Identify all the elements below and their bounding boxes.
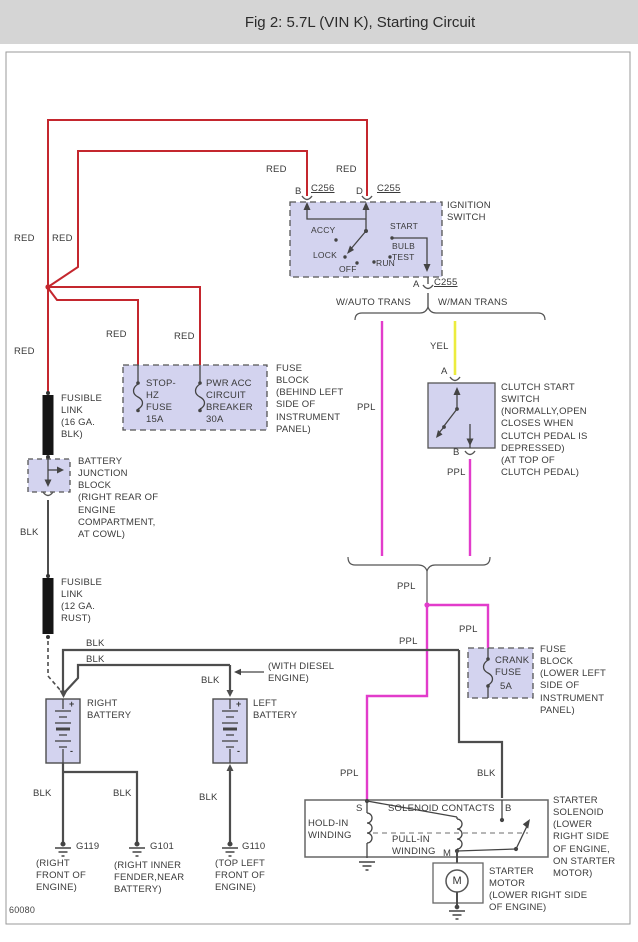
clutch-conn-b-icon — [465, 451, 475, 455]
wire-label-red: RED — [266, 164, 287, 176]
ppl-junction-dot — [424, 602, 429, 607]
link16-top-dot — [46, 391, 50, 395]
blk-dashed-link-to-battery — [48, 641, 61, 691]
solenoid-ground-icon — [359, 862, 375, 870]
ground-g110-icon — [222, 842, 238, 856]
red-junction-dot — [45, 284, 50, 289]
ignition-pos-bulb-test: BULB TEST — [392, 241, 415, 263]
battery-junction-box — [28, 459, 70, 492]
ground-g110-location: (TOP LEFT FRONT OF ENGINE) — [215, 858, 265, 894]
connector-id-c255-a: C255 — [434, 277, 458, 289]
connector-id-c255: C255 — [377, 183, 401, 195]
right-battery-label: RIGHT BATTERY — [87, 698, 131, 722]
right-battery-minus: - — [70, 746, 73, 758]
crank-fuse-dot-top — [486, 657, 490, 661]
ground-g119-id: G119 — [76, 841, 99, 853]
clutch-switch-box — [428, 383, 495, 448]
ignition-pin-b: B — [295, 186, 302, 198]
wire-label-yel: YEL — [430, 341, 449, 353]
ignition-pin-d: D — [356, 186, 363, 198]
ignition-pos-off: OFF — [339, 264, 357, 275]
branch-man-trans: W/MAN TRANS — [438, 297, 508, 309]
solenoid-contacts-label: SOLENOID CONTACTS — [388, 803, 495, 815]
link12-bottom-dot — [46, 635, 50, 639]
pull-in-winding-label: PULL-IN WINDING — [392, 834, 436, 858]
solenoid-term-s: S — [356, 803, 363, 815]
ground-g101-location: (RIGHT INNER FENDER,NEAR BATTERY) — [114, 860, 184, 896]
motor-ground-icon — [449, 905, 465, 919]
wiring-diagram-page: Fig 2: 5.7L (VIN K), Starting Circuit — [0, 0, 638, 942]
ignition-pos-accy: ACCY — [311, 225, 335, 236]
motor-m-symbol: M — [453, 874, 462, 888]
diesel-note-arrowhead — [234, 669, 241, 675]
wire-label-ppl: PPL — [397, 581, 416, 593]
wire-label-blk: BLK — [86, 654, 105, 666]
solenoid-term-b: B — [505, 803, 512, 815]
wire-label-ppl: PPL — [447, 467, 466, 479]
crank-fuse-block-label: FUSE BLOCK (LOWER LEFT SIDE OF INSTRUMEN… — [540, 644, 606, 717]
connector-b-icon — [302, 196, 312, 200]
hold-in-winding-label: HOLD-IN WINDING — [308, 818, 352, 842]
figure-number: 60080 — [9, 905, 35, 917]
battery-junction-label: BATTERY JUNCTION BLOCK (RIGHT REAR OF EN… — [78, 456, 158, 541]
wire-label-ppl: PPL — [340, 768, 359, 780]
connector-d-icon — [362, 196, 372, 200]
left-battery-plus: + — [236, 699, 241, 711]
solenoid-term-m: M — [443, 848, 451, 860]
fusible-link-12-icon — [43, 578, 54, 634]
right-battery-symbol — [46, 699, 80, 763]
blk-arrowheads — [60, 690, 234, 771]
wire-label-red: RED — [14, 346, 35, 358]
crank-fuse-name: CRANK FUSE — [495, 655, 529, 679]
wire-label-red: RED — [336, 164, 357, 176]
wire-label-ppl: PPL — [357, 402, 376, 414]
left-battery-label: LEFT BATTERY — [253, 698, 297, 722]
branch-auto-trans: W/AUTO TRANS — [336, 297, 411, 309]
ip-fuse-block-label: FUSE BLOCK (BEHIND LEFT SIDE OF INSTRUME… — [276, 363, 343, 436]
clutch-pin-b: B — [453, 447, 460, 459]
ground-g119-icon — [55, 842, 71, 856]
ignition-switch-label: IGNITION SWITCH — [447, 200, 491, 224]
clutch-pin-a: A — [441, 366, 448, 378]
clutch-switch-label: CLUTCH START SWITCH (NORMALLY,OPEN CLOSE… — [501, 382, 588, 479]
ignition-pos-start: START — [390, 221, 418, 232]
wire-label-blk: BLK — [477, 768, 496, 780]
wire-label-red: RED — [106, 329, 127, 341]
left-battery-minus: - — [237, 746, 240, 758]
fusible-link-12-label: FUSIBLE LINK (12 GA. RUST) — [61, 577, 102, 626]
connector-id-c256: C256 — [311, 183, 335, 195]
wire-label-red: RED — [52, 233, 73, 245]
wire-label-red: RED — [174, 331, 195, 343]
wire-label-ppl: PPL — [399, 636, 418, 648]
ground-g101-icon — [129, 842, 145, 856]
wire-label-red: RED — [14, 233, 35, 245]
ignition-pos-lock: LOCK — [313, 250, 337, 261]
fusible-link-16-label: FUSIBLE LINK (16 GA. BLK) — [61, 393, 102, 442]
stop-hz-fuse-label: STOP- HZ FUSE 15A — [146, 378, 176, 427]
clutch-conn-a-icon — [450, 377, 460, 381]
ground-g110-id: G110 — [242, 841, 265, 853]
ignition-pin-a: A — [413, 279, 420, 291]
wire-label-blk: BLK — [201, 675, 220, 687]
ground-g101-id: G101 — [150, 841, 174, 853]
wire-label-ppl: PPL — [459, 624, 478, 636]
wire-label-blk: BLK — [86, 638, 105, 650]
wire-label-blk: BLK — [113, 788, 132, 800]
wire-label-blk: BLK — [199, 792, 218, 804]
fusible-link-16-icon — [43, 395, 54, 455]
starter-motor-label: STARTER MOTOR (LOWER RIGHT SIDE OF ENGIN… — [489, 866, 587, 915]
left-battery-symbol — [213, 699, 247, 763]
right-battery-plus: + — [69, 699, 74, 711]
ground-g119-location: (RIGHT FRONT OF ENGINE) — [36, 858, 86, 894]
crank-fuse-amps: 5A — [500, 681, 512, 693]
wire-label-blk: BLK — [20, 527, 39, 539]
diesel-engine-note: (WITH DIESEL ENGINE) — [268, 661, 334, 685]
wire-label-blk: BLK — [33, 788, 52, 800]
pwr-acc-breaker-label: PWR ACC CIRCUIT BREAKER 30A — [206, 378, 253, 427]
link12-top-dot — [46, 574, 50, 578]
crank-fuse-dot-bottom — [486, 684, 490, 688]
